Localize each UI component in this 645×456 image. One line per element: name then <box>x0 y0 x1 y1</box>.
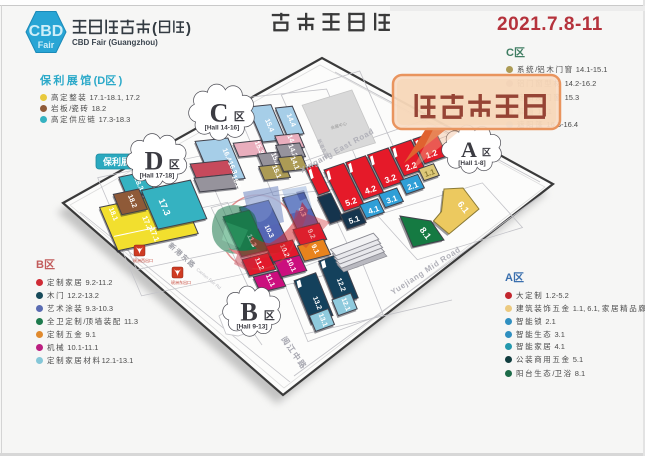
svg-text:A: A <box>461 137 477 162</box>
svg-text:区: 区 <box>234 110 245 123</box>
svg-text:C: C <box>210 98 229 127</box>
svg-text:[Hall 1-8]: [Hall 1-8] <box>458 160 485 167</box>
svg-text:区: 区 <box>169 158 180 171</box>
svg-text:区: 区 <box>264 309 275 322</box>
svg-text:[Hall 9-13]: [Hall 9-13] <box>236 323 267 330</box>
svg-text:[Hall 14-16]: [Hall 14-16] <box>205 124 240 131</box>
svg-text:[Hall 17-18]: [Hall 17-18] <box>140 172 175 179</box>
svg-text:B: B <box>240 297 257 326</box>
svg-text:D: D <box>145 146 164 175</box>
svg-text:区: 区 <box>482 148 491 158</box>
